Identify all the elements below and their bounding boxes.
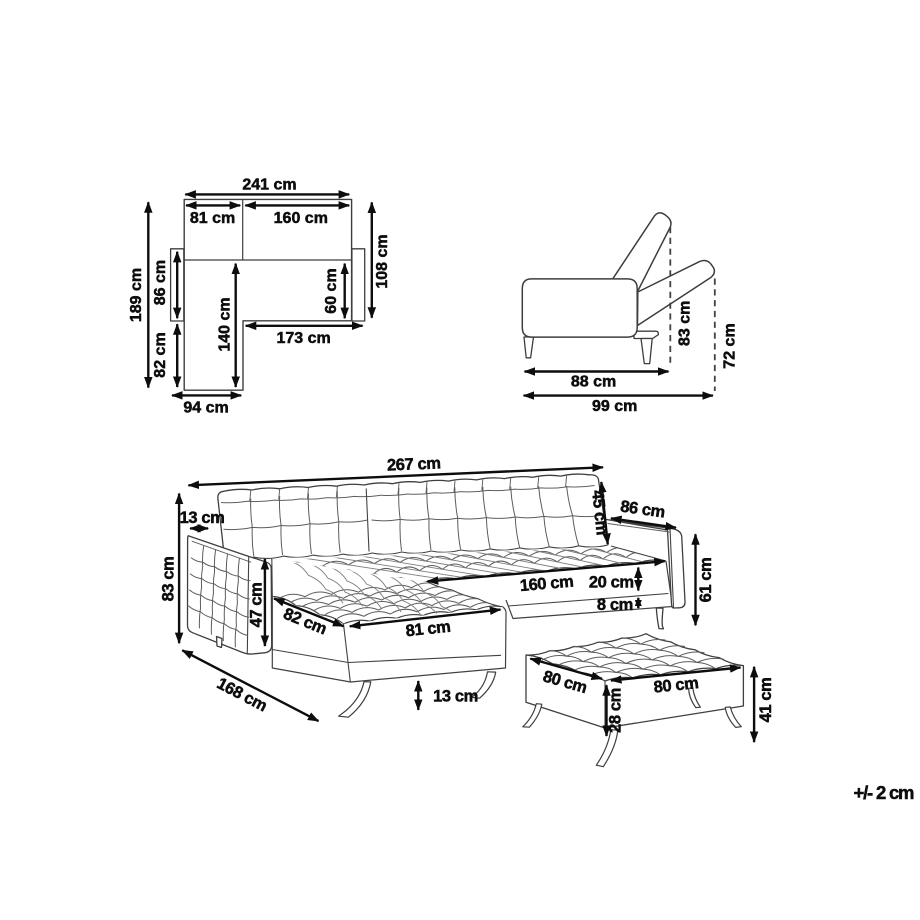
svg-text:140 cm: 140 cm xyxy=(216,297,233,351)
svg-text:28 cm: 28 cm xyxy=(607,688,625,733)
svg-text:41 cm: 41 cm xyxy=(757,678,775,723)
svg-text:189 cm: 189 cm xyxy=(128,268,145,322)
svg-text:86 cm: 86 cm xyxy=(152,260,169,305)
svg-text:267 cm: 267 cm xyxy=(387,454,441,474)
svg-text:241 cm: 241 cm xyxy=(242,176,296,193)
svg-text:108 cm: 108 cm xyxy=(374,234,391,288)
svg-text:47 cm: 47 cm xyxy=(247,583,265,628)
svg-text:61 cm: 61 cm xyxy=(697,558,715,603)
svg-text:60 cm: 60 cm xyxy=(323,268,340,313)
svg-text:94 cm: 94 cm xyxy=(183,400,228,417)
svg-text:13 cm: 13 cm xyxy=(433,688,478,706)
svg-text:13 cm: 13 cm xyxy=(180,509,225,527)
svg-text:83 cm: 83 cm xyxy=(676,301,693,346)
svg-text:83 cm: 83 cm xyxy=(160,557,178,602)
svg-text:88 cm: 88 cm xyxy=(571,373,616,390)
svg-text:173 cm: 173 cm xyxy=(276,330,330,347)
svg-text:86 cm: 86 cm xyxy=(619,498,666,522)
svg-text:82 cm: 82 cm xyxy=(152,332,169,377)
svg-text:81 cm: 81 cm xyxy=(190,210,235,227)
svg-text:8 cm: 8 cm xyxy=(597,596,633,614)
svg-text:72 cm: 72 cm xyxy=(721,323,738,368)
svg-text:160 cm: 160 cm xyxy=(274,210,328,227)
svg-text:99 cm: 99 cm xyxy=(592,398,637,415)
svg-text:+/- 2 cm: +/- 2 cm xyxy=(854,782,915,803)
svg-text:20 cm: 20 cm xyxy=(589,573,634,591)
